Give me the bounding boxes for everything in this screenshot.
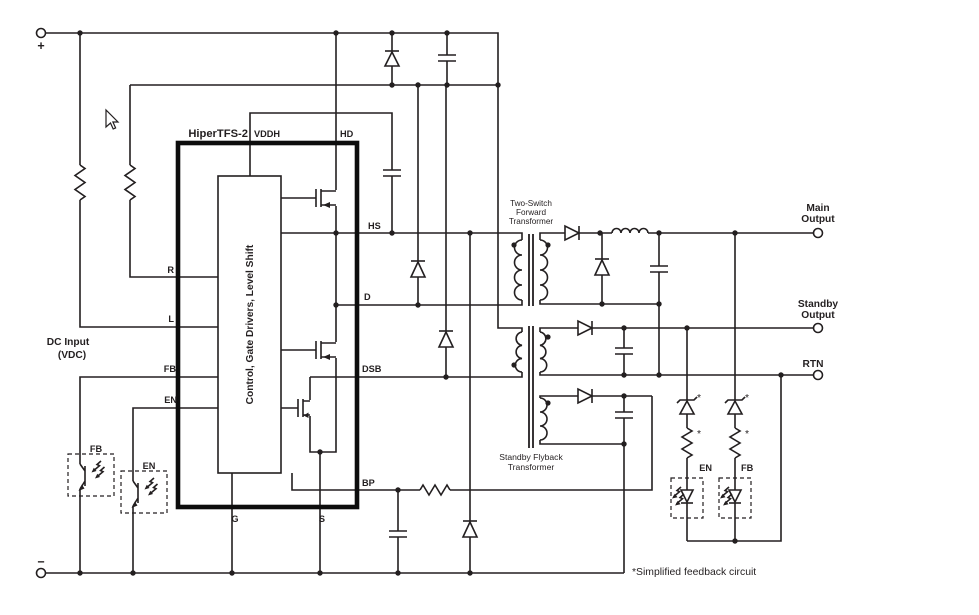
pin-label-hs: HS xyxy=(368,221,381,231)
asterisk: * xyxy=(697,393,701,404)
wire-standby-rail xyxy=(540,328,814,332)
opto-fb-label: FB xyxy=(90,444,103,454)
polarity-dot xyxy=(545,242,550,247)
wire-hs-rail xyxy=(336,233,522,240)
polarity-dot xyxy=(545,400,550,405)
main-output-terminal xyxy=(814,229,823,238)
pin-label-s: S xyxy=(319,514,325,524)
capacitor-symbol xyxy=(650,266,668,272)
led-symbol xyxy=(672,487,693,506)
mosfet-symbol xyxy=(281,189,336,208)
forward-secondary-winding xyxy=(540,240,548,300)
wire-input-resistor2-to-r-pin xyxy=(130,85,218,277)
phototransistor-symbol xyxy=(132,478,158,508)
pin-label-r: R xyxy=(167,265,174,275)
wire-fb-pin xyxy=(80,377,218,573)
mosfet-symbol xyxy=(281,399,310,418)
asterisk: * xyxy=(745,429,749,440)
main-output-label: Output xyxy=(801,214,835,225)
pin-label-dsb: DSB xyxy=(362,364,382,374)
phototransistor-symbol xyxy=(79,461,105,491)
standby-output-terminal xyxy=(814,324,823,333)
pin-label-d: D xyxy=(364,292,371,302)
resistor-symbol xyxy=(75,165,85,200)
standby-output-label: Output xyxy=(801,310,835,321)
flyback-core xyxy=(529,326,533,448)
symbols xyxy=(68,51,751,537)
mouse-cursor-icon xyxy=(106,110,118,129)
polarity-dot xyxy=(511,242,516,247)
rtn-terminal xyxy=(814,371,823,380)
zener-diode-symbol xyxy=(725,397,745,414)
capacitor-symbol xyxy=(383,170,401,176)
wire-bp-line xyxy=(292,396,652,490)
pin-label-fb: FB xyxy=(164,364,177,374)
diode-symbol xyxy=(565,226,579,240)
capacitor-symbol xyxy=(615,412,633,418)
main-output-label: Main xyxy=(806,203,829,214)
feedback-fb-label: FB xyxy=(741,463,754,473)
dc-input-label: DC Input xyxy=(47,337,90,348)
wire-main-rail xyxy=(540,233,814,240)
diode-symbol xyxy=(439,331,453,347)
resistor-symbol xyxy=(730,428,740,458)
plus-label: + xyxy=(37,39,44,53)
diode-symbol xyxy=(463,521,477,537)
resistor-symbol xyxy=(420,485,450,495)
diode-symbol xyxy=(595,259,609,275)
pin-label-en: EN xyxy=(164,395,177,405)
led-symbol xyxy=(720,487,741,506)
pin-label-l: L xyxy=(168,314,174,324)
dc-minus-terminal xyxy=(37,569,46,578)
resistor-symbol xyxy=(125,165,135,200)
polarity-dot xyxy=(545,334,550,339)
flyback-transformer-label: Standby Flyback xyxy=(499,452,563,462)
opto-en-label: EN xyxy=(143,461,156,471)
feedback-en-label: EN xyxy=(699,463,712,473)
simplified-feedback-note: *Simplified feedback circuit xyxy=(632,567,756,578)
control-block-label: Control, Gate Drivers, Level Shift xyxy=(245,244,256,404)
mosfet-symbol xyxy=(281,341,336,360)
forward-transformer-label: Transformer xyxy=(509,217,554,226)
asterisk: * xyxy=(745,393,749,404)
optocoupler-box xyxy=(68,454,114,496)
schematic-page: HiperTFS-2 VDDH HD HS D DSB BP R L FB EN… xyxy=(0,0,979,615)
forward-transformer-label: Forward xyxy=(516,208,546,217)
minus-label: − xyxy=(37,555,44,569)
wire-en-pin xyxy=(133,408,218,573)
dc-plus-terminal xyxy=(37,29,46,38)
diode-symbol xyxy=(411,261,425,277)
wire-fet-totem xyxy=(310,143,336,452)
forward-transformer-label: Two-Switch xyxy=(510,199,552,208)
wires xyxy=(46,33,814,573)
asterisk: * xyxy=(697,429,701,440)
ic-name-label: HiperTFS-2 xyxy=(188,128,248,140)
wire-dsb-rail xyxy=(310,372,522,377)
dc-input-unit-label: (VDC) xyxy=(58,350,86,361)
resistor-symbol xyxy=(682,428,692,458)
wire-top-rail xyxy=(46,33,523,332)
pin-label-bp: BP xyxy=(362,478,375,488)
capacitor-symbol xyxy=(389,531,407,537)
inductor-symbol xyxy=(612,229,648,234)
forward-core xyxy=(529,234,533,306)
capacitor-symbol xyxy=(438,55,456,61)
diode-symbol xyxy=(385,51,399,66)
standby-output-label: Standby xyxy=(798,299,839,310)
forward-primary-winding xyxy=(515,240,522,300)
pin-label-g: G xyxy=(231,514,238,524)
wire-input-resistor1-to-l-pin xyxy=(80,33,218,327)
pin-label-hd: HD xyxy=(340,129,354,139)
diode-symbol xyxy=(578,321,592,335)
wire-bias-top xyxy=(540,396,652,398)
labels: HiperTFS-2 VDDH HD HS D DSB BP R L FB EN… xyxy=(37,39,838,578)
flyback-transformer-label: Transformer xyxy=(508,462,555,472)
diode-symbol xyxy=(578,389,592,403)
zener-diode-symbol xyxy=(677,397,697,414)
capacitor-symbol xyxy=(615,348,633,354)
optocoupler-box xyxy=(121,471,167,513)
wire-bias-bottom xyxy=(540,440,624,444)
pin-label-vddh: VDDH xyxy=(254,129,280,139)
polarity-dot xyxy=(511,362,516,367)
rtn-label: RTN xyxy=(803,359,824,370)
circuit-schematic: HiperTFS-2 VDDH HD HS D DSB BP R L FB EN… xyxy=(0,0,979,615)
wire-rtn-rail xyxy=(540,372,814,375)
